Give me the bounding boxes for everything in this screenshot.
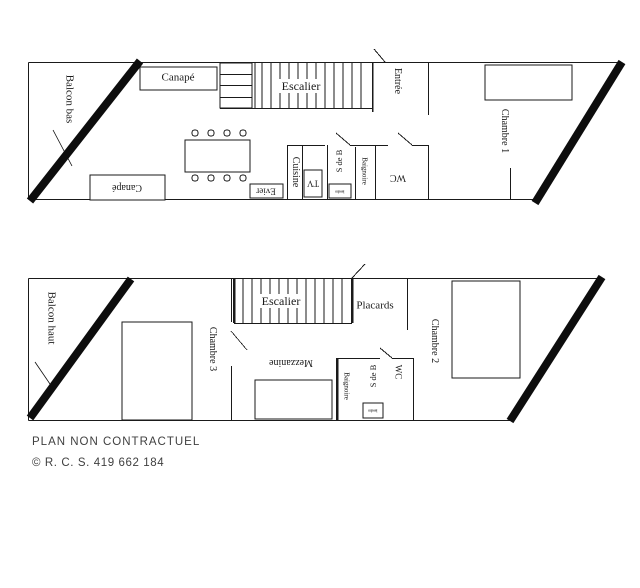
lower-bath-door-leaf [380, 348, 392, 358]
plan-disclaimer: PLAN NON CONTRACTUEL [32, 436, 200, 448]
wc-door-leaf [398, 133, 412, 145]
lower-right-balcony-edge [510, 277, 602, 421]
label-s-de-b-upper: S de B [335, 150, 344, 173]
chambre3-door-leaf [231, 331, 247, 350]
bed-chambre-1 [485, 65, 572, 100]
label-baignoire-lower: Baignoire [343, 372, 350, 400]
bed-chambre-3 [122, 322, 192, 420]
entrance-door-leaf [374, 49, 385, 62]
label-lavabo-upper: lavabo [336, 189, 345, 194]
lower-door-leaf-top [352, 264, 365, 278]
sdeb-door-leaf [336, 133, 350, 145]
label-baignoire-upper: Baignoire [361, 157, 368, 185]
label-cuisine: Cuisine [290, 157, 300, 188]
label-placards: Placards [356, 301, 393, 312]
label-canape-top: Canapé [162, 73, 195, 84]
label-escalier-lower: Escalier [259, 294, 304, 308]
label-evier: Evier [256, 187, 276, 196]
label-entree: Entrée [392, 68, 402, 94]
label-balcon-bas: Balcon bas [64, 75, 75, 124]
label-balcon-haut: Balcon haut [46, 292, 57, 345]
label-mezzanine: Mezzanine [269, 357, 313, 367]
dining-table [185, 140, 250, 172]
label-chambre-2: Chambre 2 [429, 319, 439, 363]
rcs-number: © R. C. S. 419 662 184 [32, 457, 164, 469]
label-s-de-b-lower: S de B [369, 365, 378, 388]
label-chambre-1: Chambre 1 [499, 109, 509, 153]
label-chambre-3: Chambre 3 [207, 327, 217, 371]
label-escalier-upper: Escalier [279, 79, 324, 93]
lower-balcony-tick [35, 362, 50, 384]
label-lavabo-lower: lavabo [369, 408, 378, 413]
label-canape-bottom: Canapé [112, 182, 142, 192]
label-wc-upper: WC [390, 172, 406, 182]
label-tv: TV [307, 179, 319, 188]
floor-plan-page: Balcon bas Canapé Escalier Entrée Chambr… [0, 0, 640, 588]
mezzanine-bed [255, 380, 332, 419]
label-wc-lower: WC [394, 365, 403, 380]
bed-chambre-2 [452, 281, 520, 378]
